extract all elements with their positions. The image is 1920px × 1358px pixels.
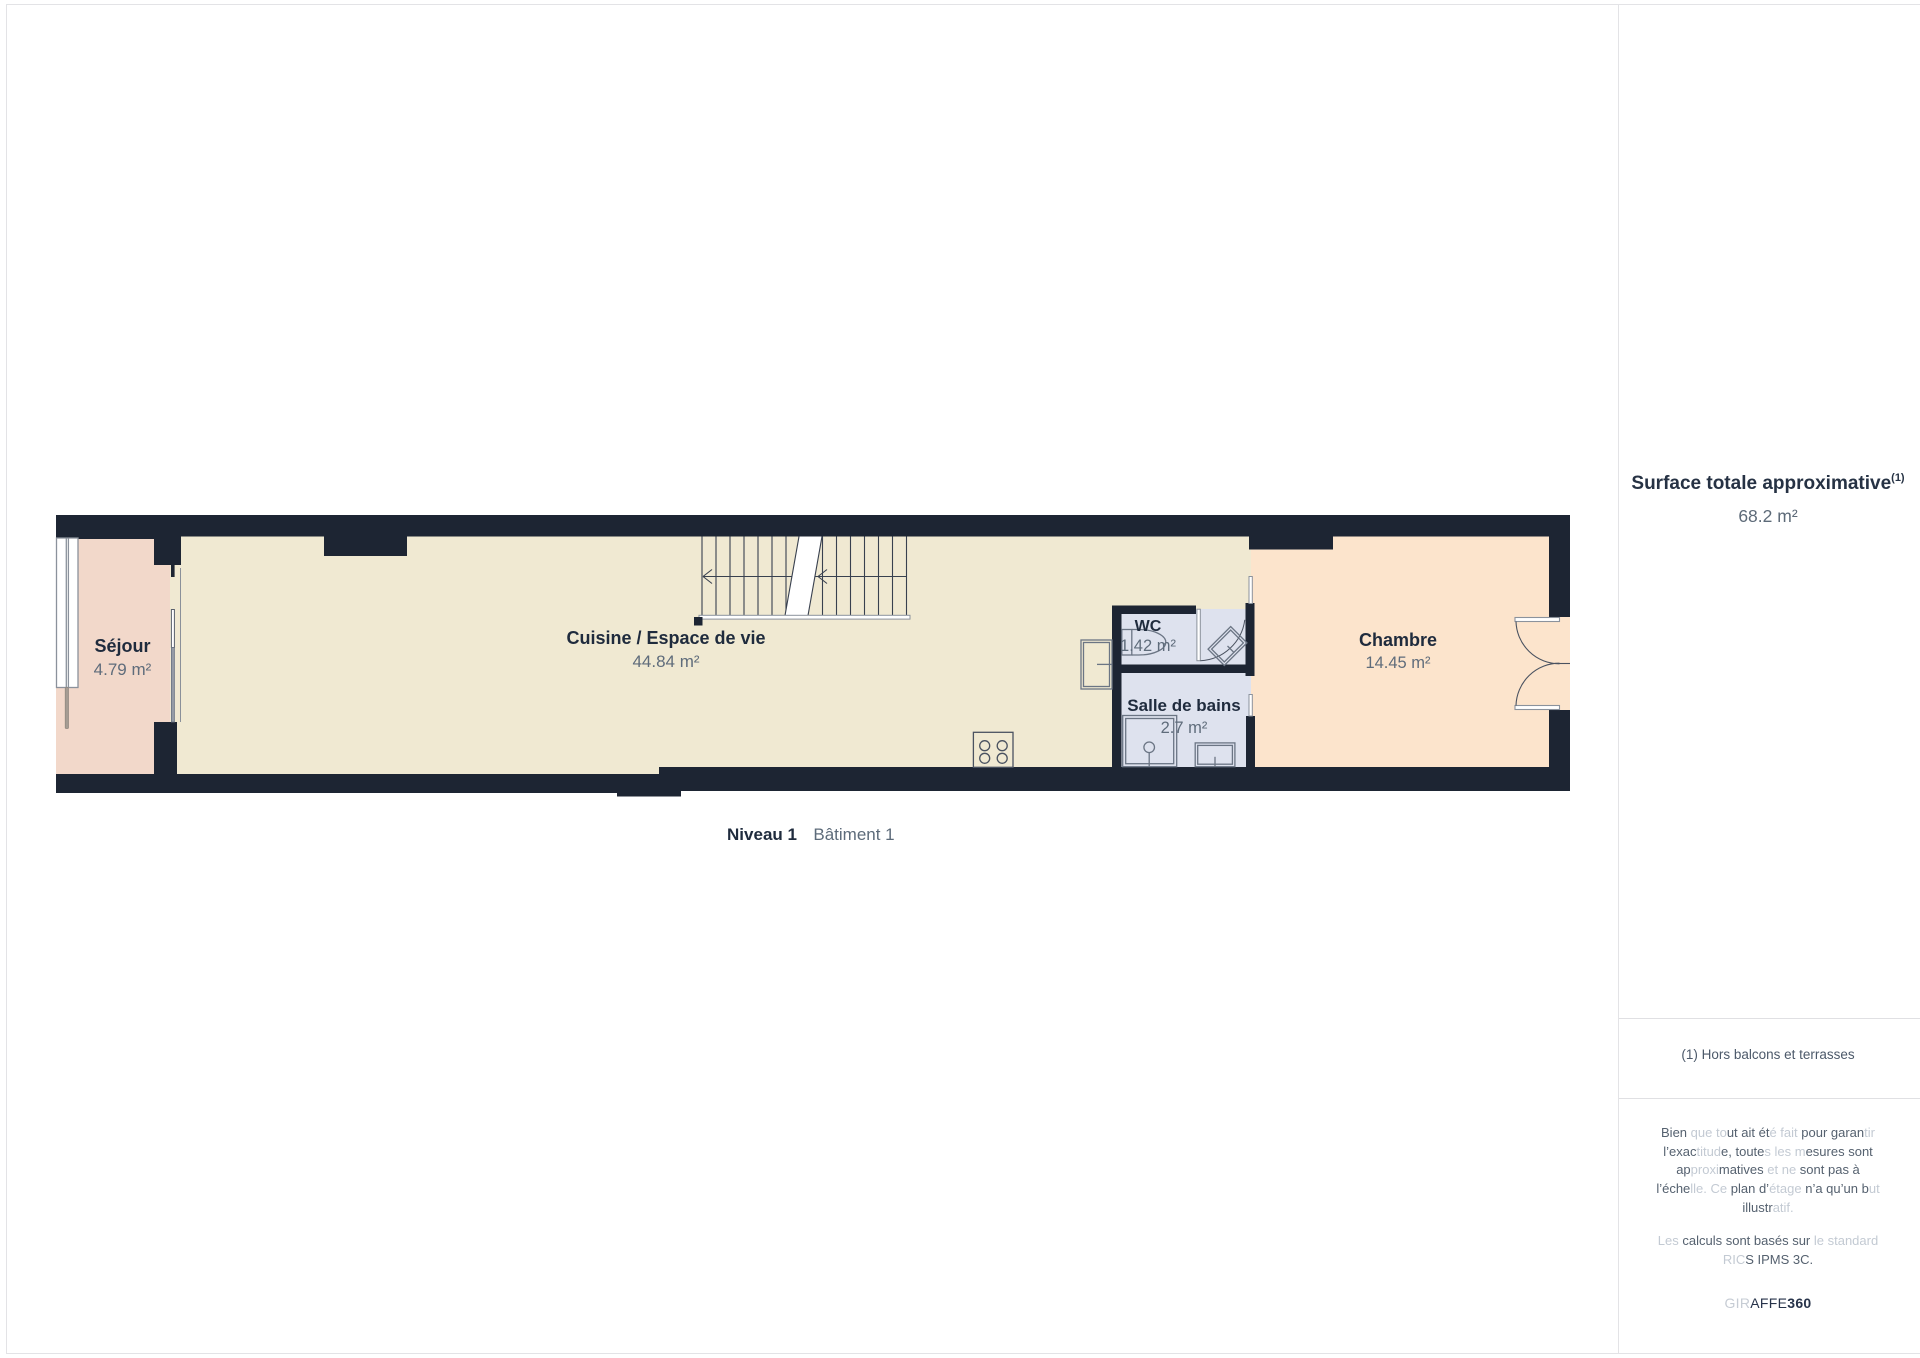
svg-text:14.45 m²: 14.45 m² xyxy=(1365,654,1431,672)
svg-text:Bâtiment 1: Bâtiment 1 xyxy=(813,825,894,844)
svg-text:Séjour: Séjour xyxy=(94,636,150,656)
svg-text:Niveau 1: Niveau 1 xyxy=(727,825,797,844)
svg-text:Cuisine / Espace de vie: Cuisine / Espace de vie xyxy=(566,628,765,648)
svg-text:4.79 m²: 4.79 m² xyxy=(94,660,152,679)
svg-text:Salle de bains: Salle de bains xyxy=(1127,696,1240,715)
svg-text:WC: WC xyxy=(1135,618,1162,635)
svg-text:2.7 m²: 2.7 m² xyxy=(1161,719,1208,737)
svg-text:Chambre: Chambre xyxy=(1359,630,1437,650)
svg-text:44.84 m²: 44.84 m² xyxy=(632,652,699,671)
svg-text:1.42 m²: 1.42 m² xyxy=(1120,637,1176,655)
